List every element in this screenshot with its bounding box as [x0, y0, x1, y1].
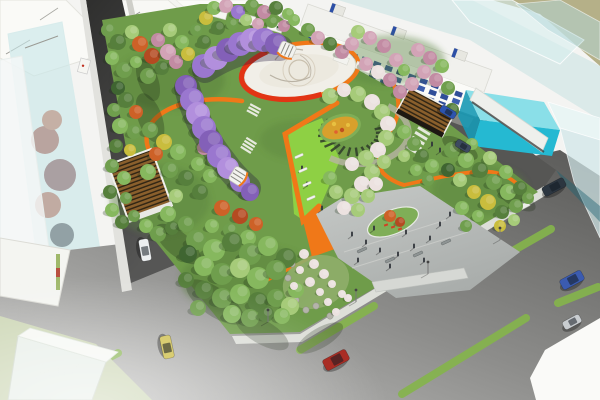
spiral-slat: [356, 148, 357, 157]
flower-dot: [340, 128, 344, 132]
flower-dot: [346, 123, 350, 127]
garden-rock: [313, 303, 319, 309]
garden-rock: [285, 275, 291, 281]
flower-dot: [332, 122, 336, 126]
flower-dot: [334, 130, 338, 134]
garden-rock: [303, 307, 309, 313]
park-masterplan-rendering: [0, 0, 600, 400]
rendering-canvas: [0, 0, 600, 400]
facade-red-stripe: [56, 268, 60, 277]
